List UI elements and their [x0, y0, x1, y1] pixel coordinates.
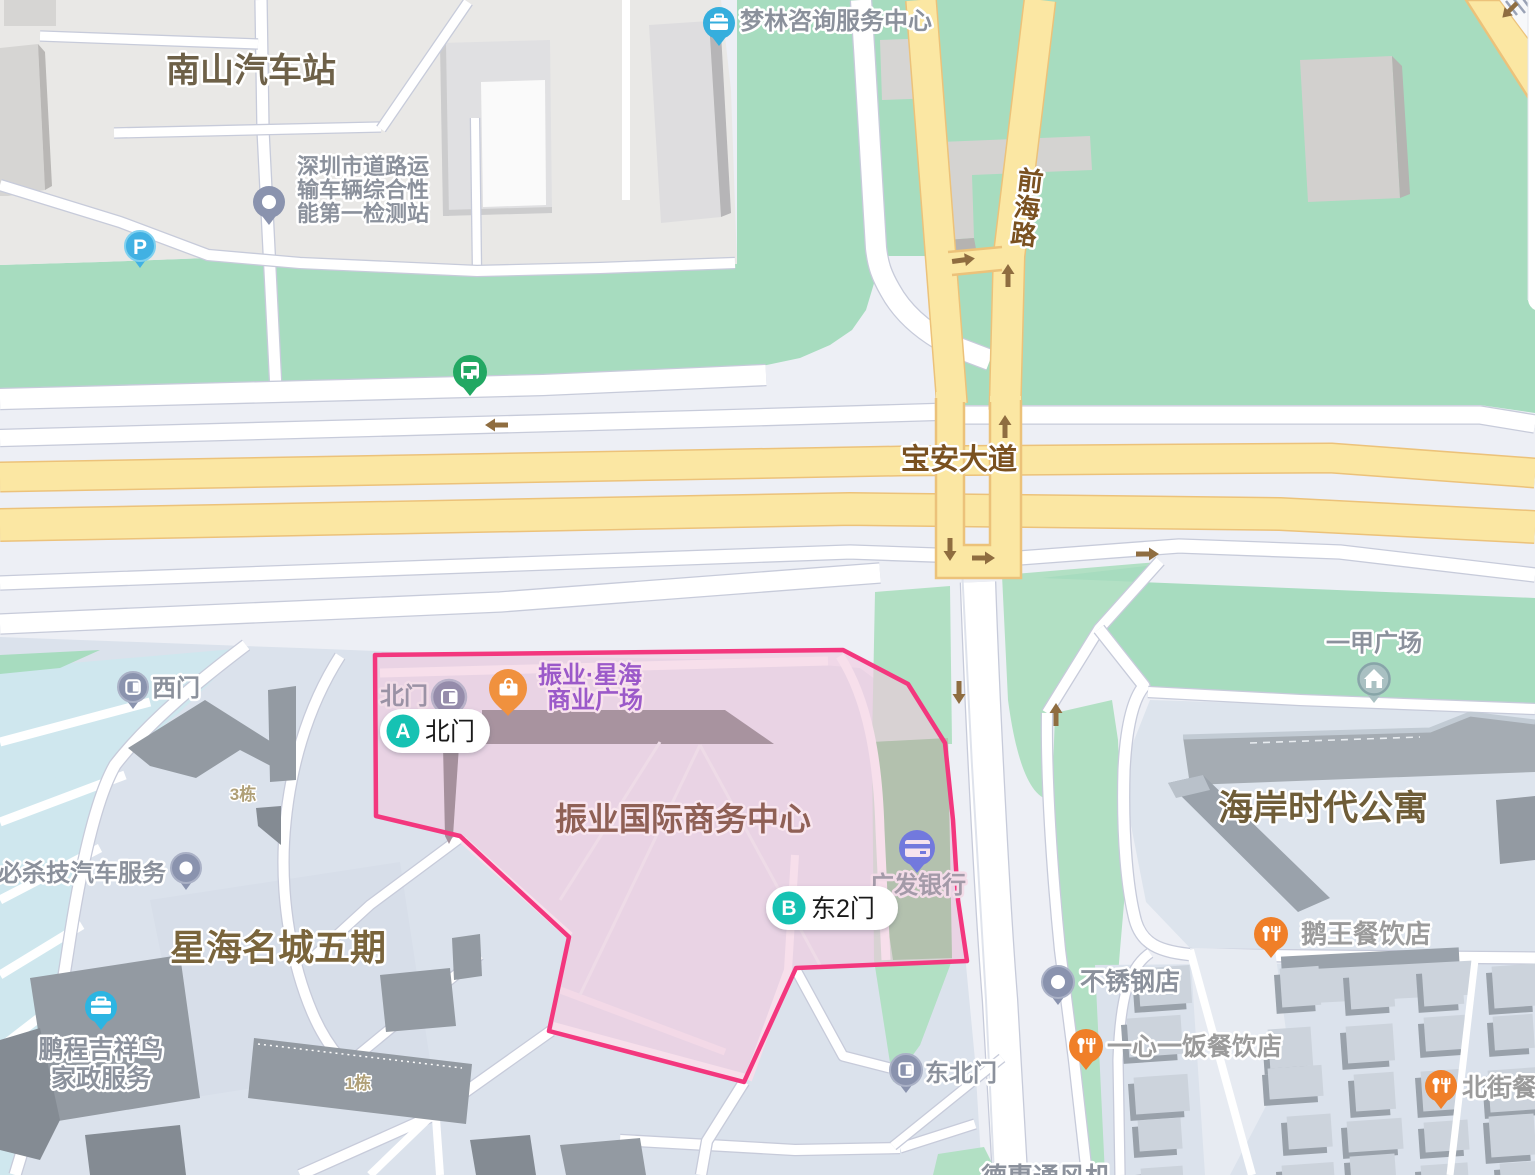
svg-text:宝安大道: 宝安大道 [901, 442, 1017, 476]
svg-text:不锈钢店: 不锈钢店 [1080, 967, 1180, 996]
svg-text:南山汽车站: 南山汽车站 [166, 52, 336, 90]
svg-text:商业广场: 商业广场 [547, 686, 643, 714]
svg-text:1栋: 1栋 [345, 1073, 371, 1093]
svg-text:西门: 西门 [152, 674, 200, 702]
svg-text:能第一检测站: 能第一检测站 [297, 201, 429, 226]
svg-text:梦林咨询服务中心: 梦林咨询服务中心 [740, 7, 932, 35]
svg-text:A: A [395, 720, 410, 743]
svg-text:东北门: 东北门 [925, 1059, 997, 1087]
svg-text:北门: 北门 [380, 682, 428, 710]
svg-text:东2门: 东2门 [811, 895, 875, 923]
svg-text:振业国际商务中心: 振业国际商务中心 [555, 801, 811, 837]
svg-text:北街餐饮店: 北街餐饮店 [1462, 1073, 1535, 1102]
svg-text:德惠通风机: 德惠通风机 [981, 1162, 1111, 1175]
svg-text:深圳市道路运: 深圳市道路运 [297, 154, 429, 179]
svg-text:必杀技汽车服务: 必杀技汽车服务 [0, 859, 167, 887]
svg-text:B: B [781, 897, 796, 920]
svg-text:鹏程吉祥鸟: 鹏程吉祥鸟 [38, 1035, 163, 1064]
svg-text:3栋: 3栋 [230, 784, 256, 804]
svg-text:北门: 北门 [425, 718, 475, 746]
svg-text:路: 路 [1009, 218, 1039, 251]
svg-text:一心一饭餐饮店: 一心一饭餐饮店 [1107, 1032, 1282, 1061]
svg-text:星海名城五期: 星海名城五期 [170, 927, 386, 968]
svg-text:P: P [133, 236, 147, 259]
svg-text:家政服务: 家政服务 [51, 1064, 151, 1093]
svg-text:一甲广场: 一甲广场 [1326, 629, 1422, 657]
svg-text:输车辆综合性: 输车辆综合性 [297, 178, 429, 203]
svg-text:鹅王餐饮店: 鹅王餐饮店 [1301, 919, 1431, 949]
svg-text:海岸时代公寓: 海岸时代公寓 [1218, 789, 1428, 828]
svg-text:振业·星海: 振业·星海 [538, 661, 642, 689]
